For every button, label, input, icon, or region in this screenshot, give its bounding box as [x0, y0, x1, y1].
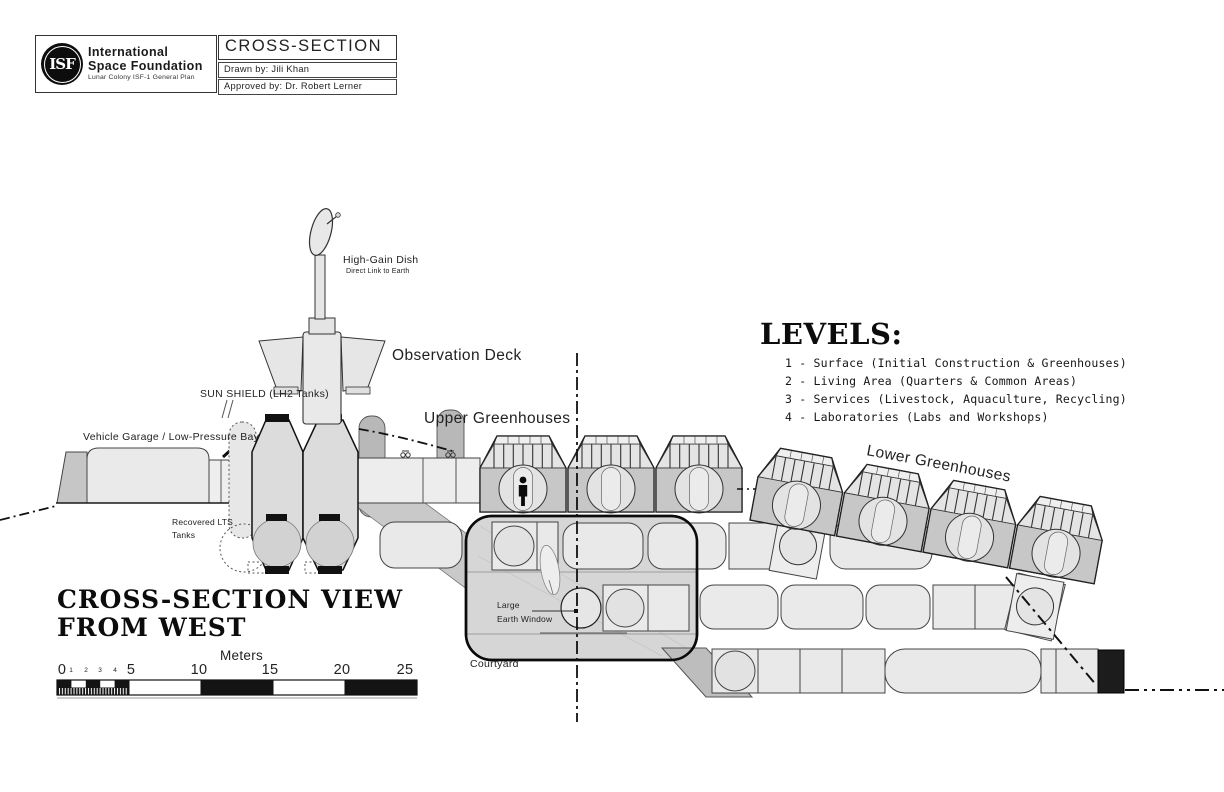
logo-ring — [44, 46, 81, 83]
levels-legend: LEVELS: 1 - Surface (Initial Constructio… — [760, 317, 1127, 424]
label-recovered-tanks-1: Recovered LTS — [172, 517, 233, 527]
legend-item-1: 1 - Surface (Initial Construction & Gree… — [785, 356, 1127, 370]
rover-icon — [401, 451, 410, 457]
legend-item-3: 3 - Services (Livestock, Aquaculture, Re… — [785, 392, 1127, 406]
label-earth-window-1: Large — [497, 600, 520, 610]
org-name-line1: International — [88, 46, 203, 59]
scale-tick: 20 — [334, 662, 351, 678]
view-title-line2: FROM WEST — [57, 613, 246, 642]
drawn-by: Drawn by: Jili Khan — [218, 62, 397, 78]
scale-tick: 10 — [191, 662, 208, 678]
title-block: ISF International Space Foundation Lunar… — [35, 35, 397, 93]
scale-minor-tick: 1 — [69, 667, 73, 674]
lh2-tanks — [252, 414, 358, 574]
scale-tick: 15 — [262, 662, 279, 678]
greenhouse-connector-shaft — [1006, 574, 1064, 640]
upper-greenhouses-group — [480, 436, 742, 513]
observation-pod-right — [341, 337, 385, 391]
legend-title: LEVELS: — [760, 317, 903, 351]
approved-by: Approved by: Dr. Robert Lerner — [218, 79, 397, 95]
upper-greenhouse-module — [568, 436, 654, 513]
view-title-line1: CROSS-SECTION VIEW — [57, 585, 403, 614]
isf-logo-icon: ISF — [41, 43, 83, 85]
observation-pod-left — [259, 337, 303, 391]
scale-tick: 25 — [397, 662, 414, 678]
drawing-sheet: ISF International Space Foundation Lunar… — [0, 0, 1224, 792]
garage-ramp — [57, 452, 87, 503]
lower-greenhouse-module — [1009, 493, 1108, 584]
legend-item-2: 2 - Living Area (Quarters & Common Areas… — [785, 374, 1077, 388]
label-sun-shield: SUN SHIELD (LH2 Tanks) — [200, 388, 329, 400]
tunnel-end-plug — [1098, 650, 1124, 693]
lower-greenhouse-module — [923, 477, 1022, 568]
scale-unit-label: Meters — [220, 648, 263, 663]
org-panel: ISF International Space Foundation Lunar… — [35, 35, 217, 93]
vehicle-garage-structure — [56, 444, 254, 503]
scale-minor-tick: 3 — [98, 667, 102, 674]
antenna-mast — [315, 255, 325, 319]
scale-minor-tick: 4 — [113, 667, 117, 674]
scale-minor-tick: 2 — [84, 667, 88, 674]
org-text: International Space Foundation Lunar Col… — [88, 46, 203, 81]
level4-laboratory-modules — [662, 648, 1124, 697]
org-subtitle: Lunar Colony ISF-1 General Plan — [88, 75, 203, 82]
label-courtyard: Courtyard — [470, 658, 519, 670]
legend-item-4: 4 - Laboratories (Labs and Workshops) — [785, 410, 1049, 424]
cross-section-drawing: High-Gain Dish Direct Link to Earth Obse… — [0, 0, 1224, 792]
lower-greenhouse-module — [836, 461, 935, 552]
scale-bar: Meters 0 5 10 15 20 25 1 2 3 4 — [57, 648, 417, 698]
label-observation-deck: Observation Deck — [392, 347, 522, 364]
label-vehicle-garage: Vehicle Garage / Low-Pressure Bay — [83, 431, 260, 443]
label-direct-link: Direct Link to Earth — [346, 268, 410, 275]
sheet-title: CROSS-SECTION — [218, 35, 397, 60]
earth-window-circle — [561, 588, 601, 628]
lower-greenhouse-module — [750, 445, 849, 536]
surface-corridor — [358, 451, 480, 503]
label-earth-window-2: Earth Window — [497, 614, 553, 624]
org-name-line2: Space Foundation — [88, 60, 203, 73]
label-upper-greenhouses: Upper Greenhouses — [424, 410, 570, 427]
scale-tick: 0 — [58, 662, 66, 678]
sheet-info-panel: CROSS-SECTION Drawn by: Jili Khan Approv… — [218, 35, 397, 95]
upper-greenhouse-module — [656, 436, 742, 513]
label-recovered-tanks-2: Tanks — [172, 530, 195, 540]
scale-tick: 5 — [127, 662, 135, 678]
high-gain-dish-icon — [305, 206, 340, 258]
label-high-gain-dish: High-Gain Dish — [343, 254, 418, 266]
view-title: CROSS-SECTION VIEW FROM WEST — [57, 585, 403, 642]
